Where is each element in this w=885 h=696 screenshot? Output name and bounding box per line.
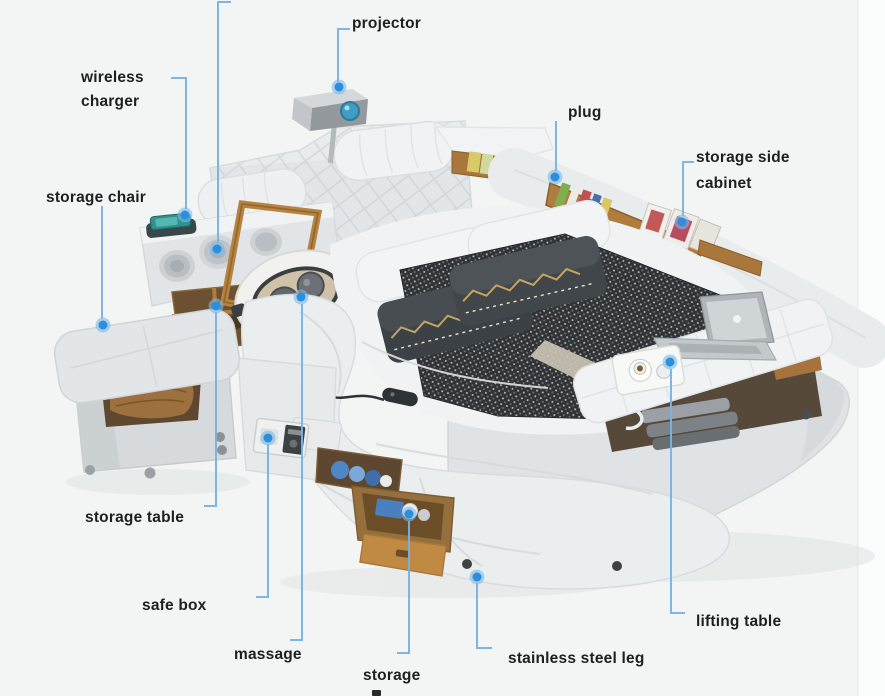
label-stainless-steel-leg: stainless steel leg bbox=[508, 647, 644, 670]
speaker-icon bbox=[250, 228, 282, 256]
label-storage-table: storage table bbox=[85, 506, 184, 529]
stainless-leg bbox=[612, 561, 622, 571]
label-storage-side-cabinet: storage side cabinet bbox=[696, 145, 806, 197]
projector-lens-icon bbox=[341, 102, 359, 120]
label-plug: plug bbox=[568, 101, 602, 124]
annotated-bed-diagram: projector wireless charger plug storage … bbox=[0, 0, 885, 696]
stainless-leg bbox=[462, 559, 472, 569]
open-drawer bbox=[352, 486, 454, 576]
callout-dot-storage-chair bbox=[96, 318, 111, 333]
callout-dot-storage-side-cabinet bbox=[675, 215, 690, 230]
label-wireless-charger: wireless charger bbox=[81, 66, 159, 114]
callout-dot-storage bbox=[402, 507, 417, 522]
callout-dot-lifting-table bbox=[663, 355, 678, 370]
speaker-icon bbox=[159, 250, 195, 282]
callout-dot-speaker bbox=[210, 242, 225, 257]
callout-dot-massage bbox=[294, 290, 309, 305]
cropped-text-fragment bbox=[372, 690, 381, 696]
label-storage-chair: storage chair bbox=[46, 186, 146, 209]
callout-dot-safe-box bbox=[261, 431, 276, 446]
label-projector: projector bbox=[352, 12, 421, 35]
label-lifting-table: lifting table bbox=[696, 610, 781, 633]
callout-dot-plug bbox=[548, 170, 563, 185]
callout-dot-projector bbox=[332, 80, 347, 95]
callout-dot-wireless-charger bbox=[178, 208, 193, 223]
label-storage: storage bbox=[363, 664, 420, 687]
stainless-leg bbox=[802, 411, 811, 420]
callout-dot-stainless-steel-leg bbox=[470, 570, 485, 585]
callout-dot-storage-table bbox=[209, 299, 224, 314]
label-massage: massage bbox=[234, 643, 302, 666]
label-safe-box: safe box bbox=[142, 594, 207, 617]
